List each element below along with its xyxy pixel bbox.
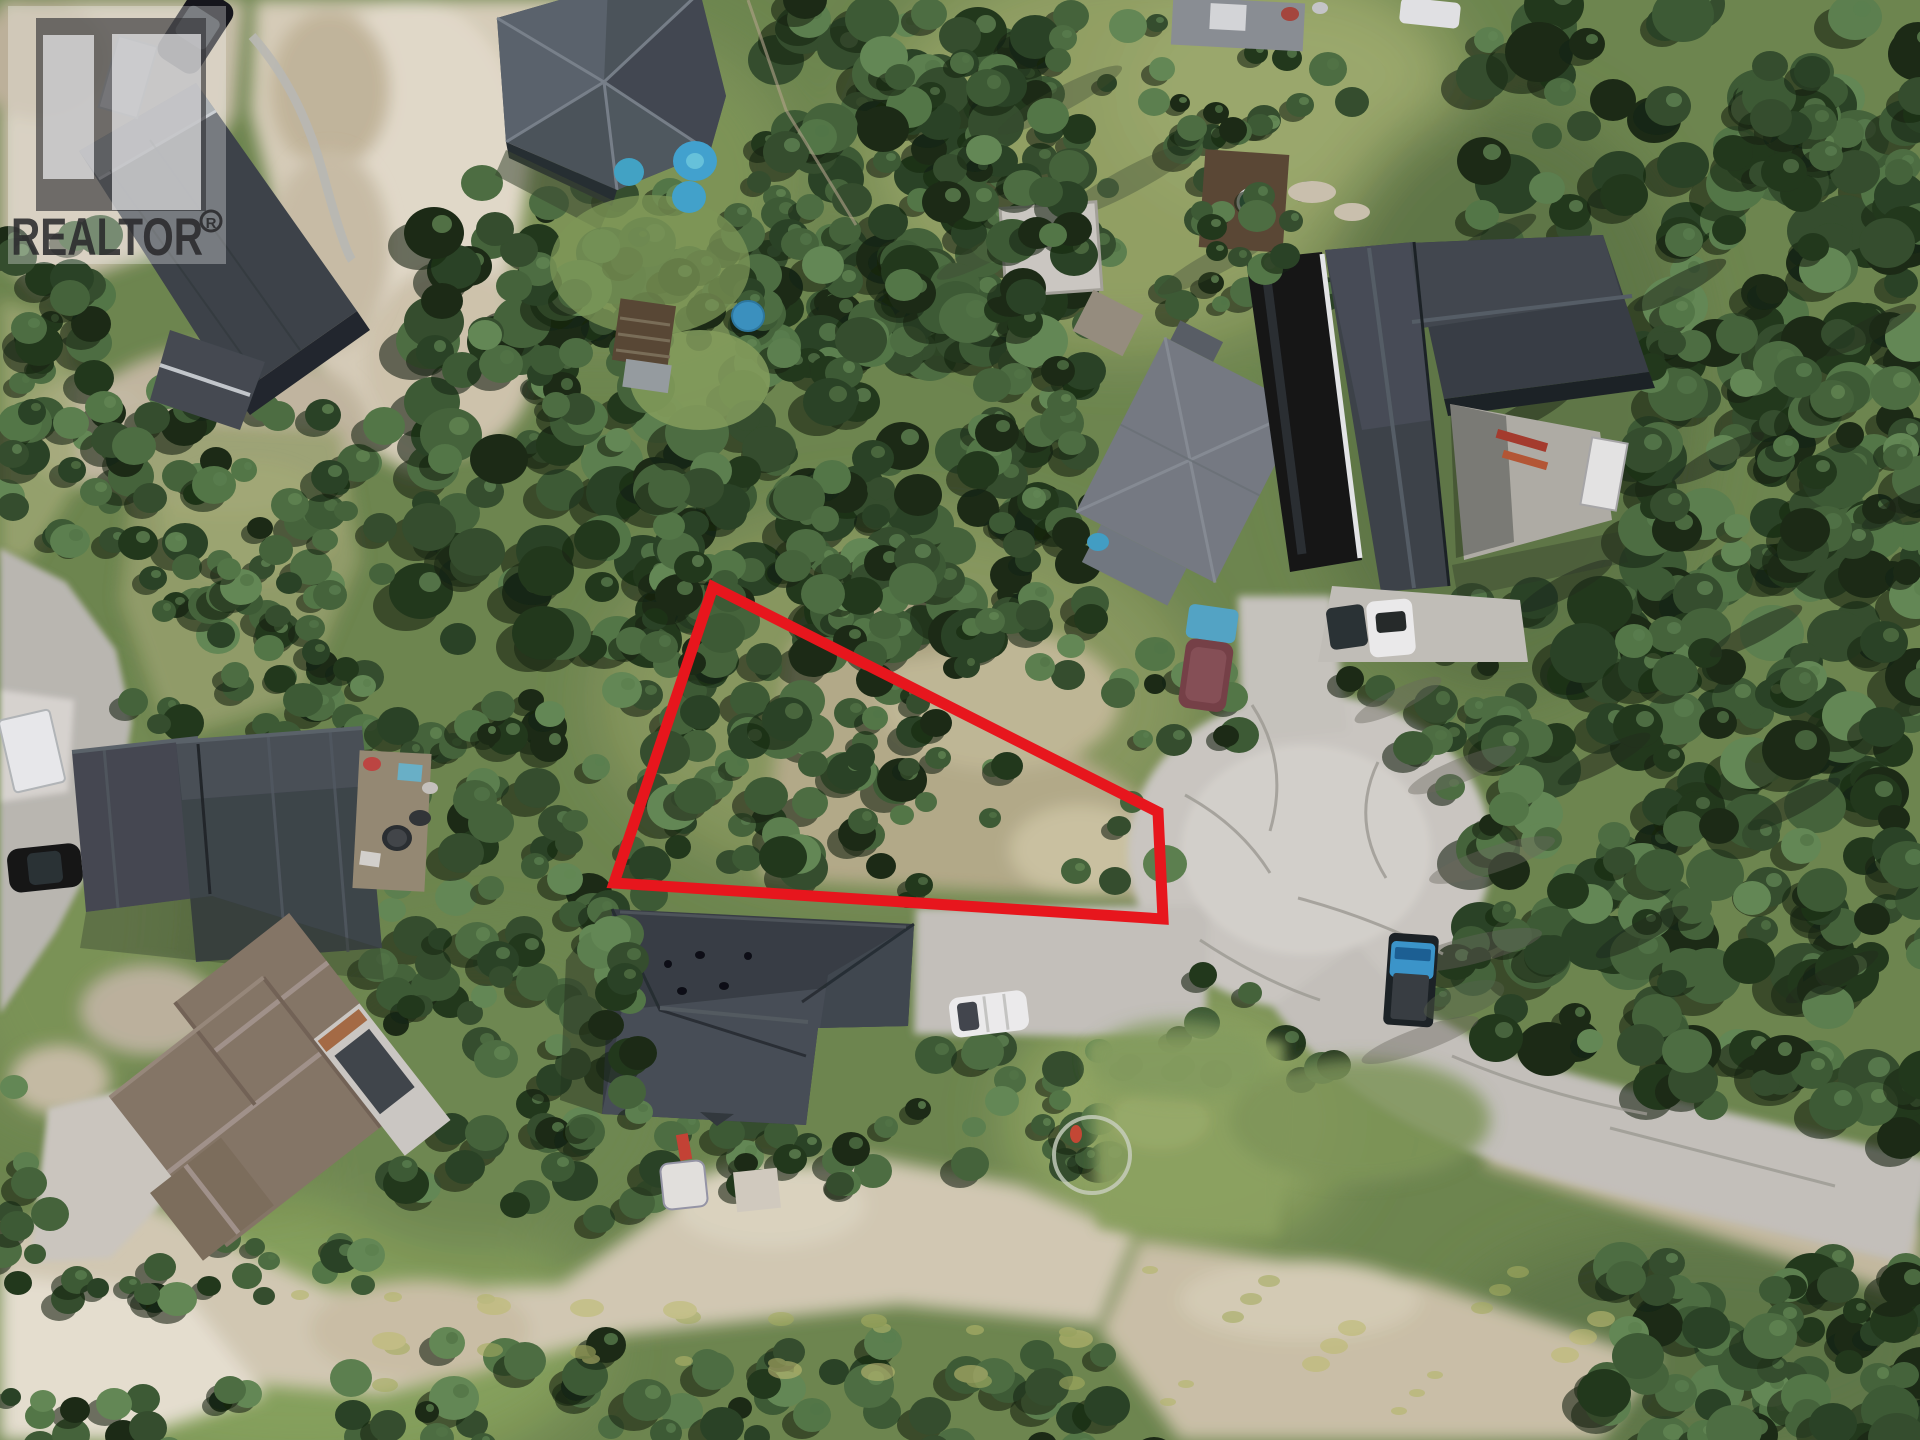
svg-text:R: R bbox=[206, 215, 217, 232]
svg-text:REALTOR: REALTOR bbox=[11, 208, 203, 267]
